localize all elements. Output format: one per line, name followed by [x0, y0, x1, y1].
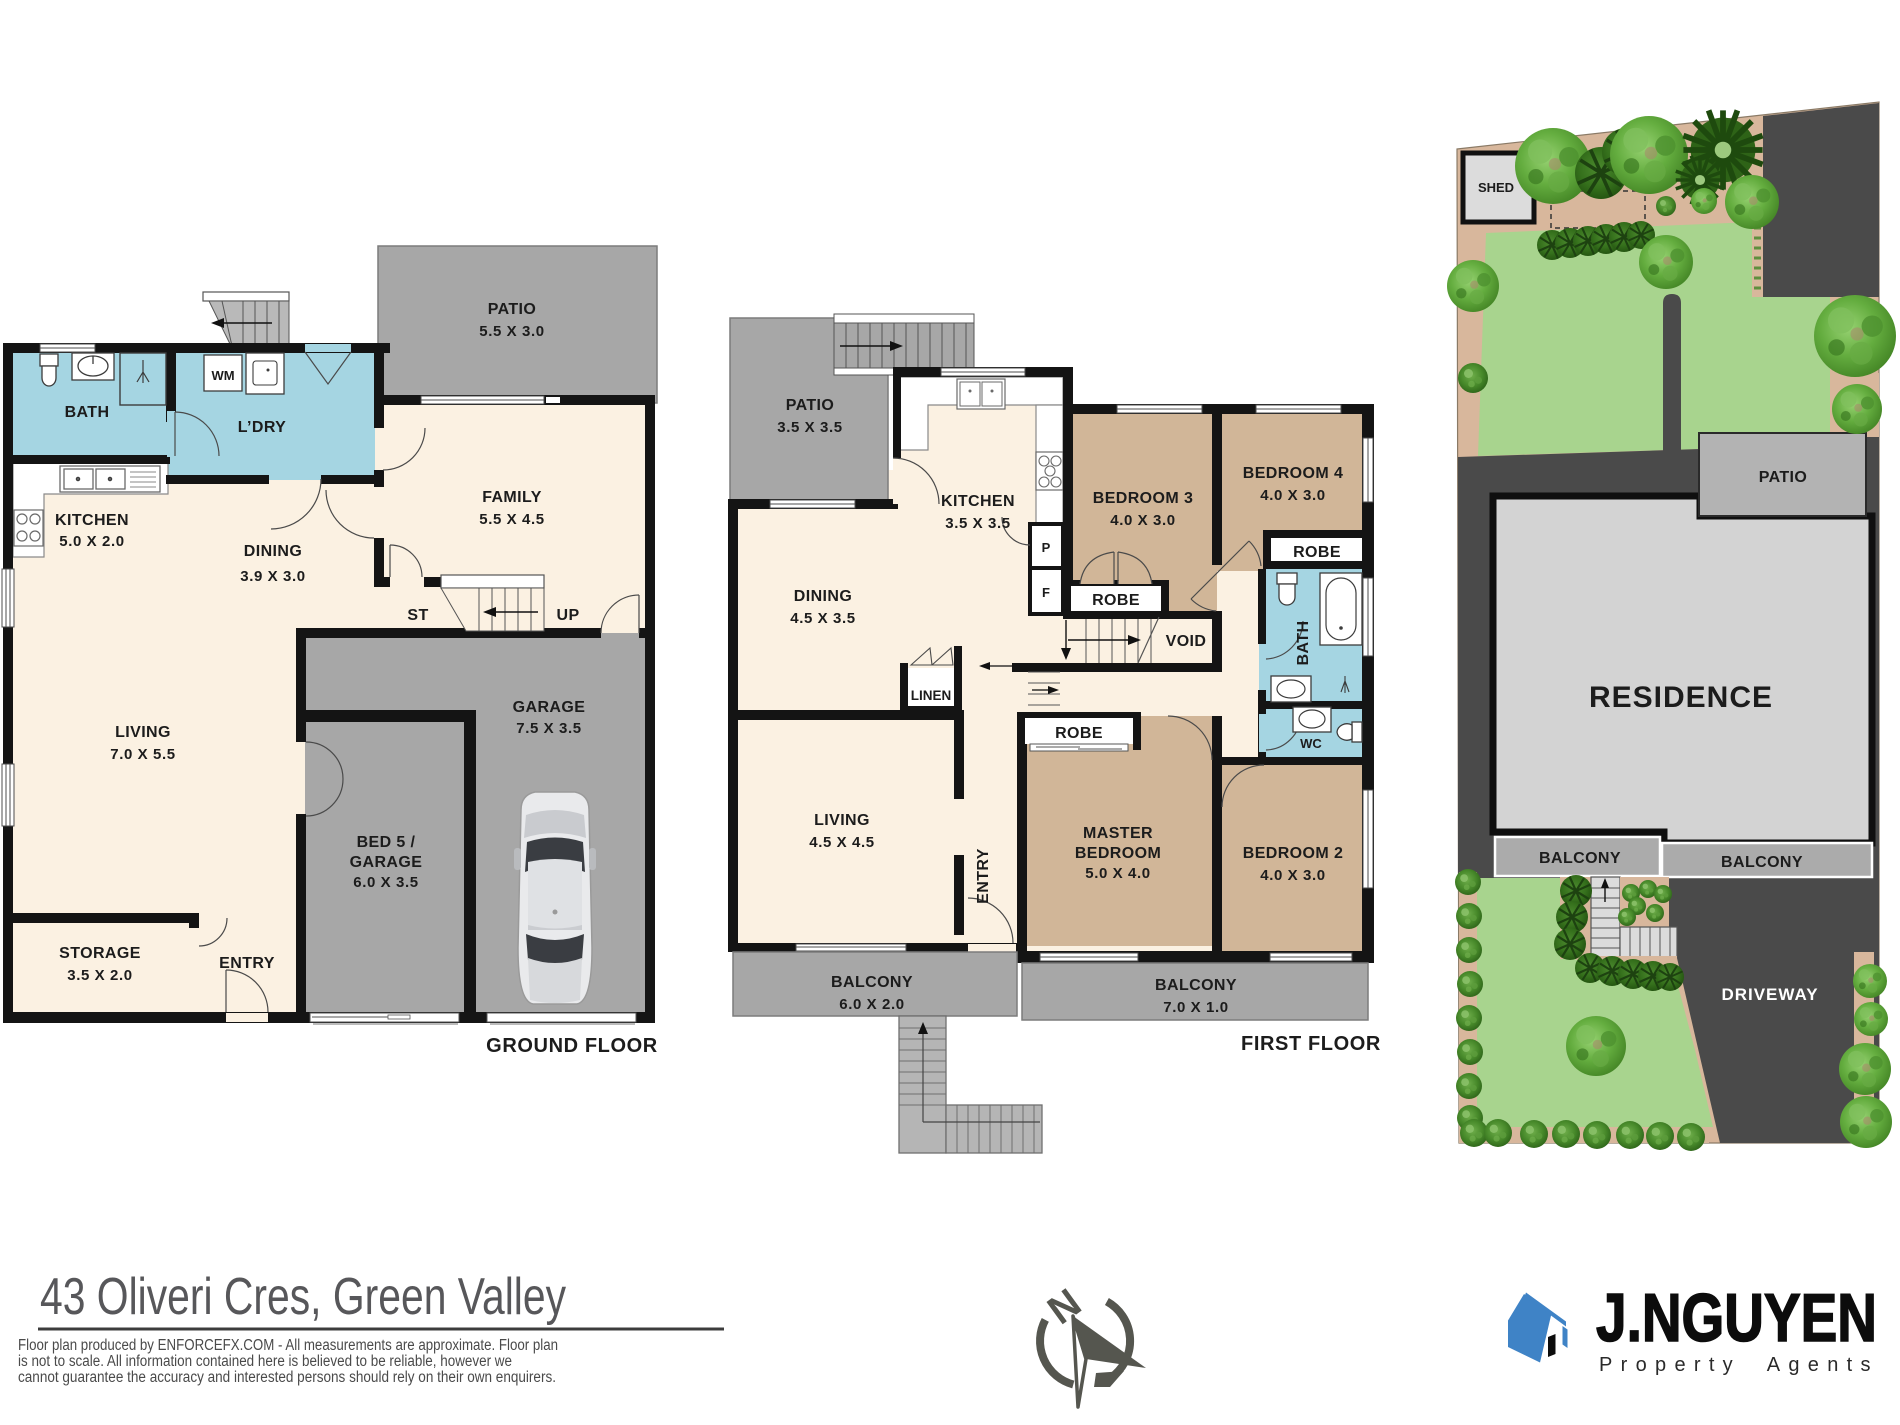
svg-text:DRIVEWAY: DRIVEWAY — [1721, 985, 1818, 1004]
svg-text:Floor plan produced by ENFORCE: Floor plan produced by ENFORCEFX.COM - A… — [18, 1337, 558, 1354]
svg-text:P: P — [1042, 540, 1051, 555]
svg-text:5.5 X 4.5: 5.5 X 4.5 — [479, 511, 544, 528]
svg-text:4.0 X 3.0: 4.0 X 3.0 — [1110, 512, 1175, 529]
svg-text:cannot guarantee the accuracy: cannot guarantee the accuracy and intere… — [18, 1369, 556, 1386]
svg-text:3.9 X 3.0: 3.9 X 3.0 — [240, 568, 305, 585]
svg-text:BALCONY: BALCONY — [1155, 977, 1237, 994]
svg-text:is not to scale. All informati: is not to scale. All information contain… — [18, 1353, 512, 1370]
svg-text:BALCONY: BALCONY — [1539, 850, 1621, 867]
svg-text:KITCHEN: KITCHEN — [941, 493, 1015, 510]
svg-text:6.0 X 3.5: 6.0 X 3.5 — [353, 874, 418, 891]
svg-text:ROBE: ROBE — [1055, 725, 1103, 742]
svg-text:GARAGE: GARAGE — [513, 699, 586, 716]
svg-text:ENTRY: ENTRY — [975, 848, 992, 904]
svg-text:RESIDENCE: RESIDENCE — [1589, 681, 1773, 714]
svg-text:7.0 X 5.5: 7.0 X 5.5 — [110, 746, 175, 763]
svg-text:LIVING: LIVING — [814, 812, 870, 829]
svg-text:BEDROOM 4: BEDROOM 4 — [1243, 465, 1344, 482]
svg-text:BATH: BATH — [65, 404, 110, 421]
svg-text:L’DRY: L’DRY — [238, 419, 287, 436]
svg-text:43 Oliveri Cres, Green Valley: 43 Oliveri Cres, Green Valley — [40, 1268, 566, 1326]
svg-text:PATIO: PATIO — [1759, 469, 1808, 486]
svg-text:BED 5 /: BED 5 / — [357, 834, 416, 851]
svg-text:MASTER: MASTER — [1083, 825, 1153, 842]
svg-text:PATIO: PATIO — [488, 301, 537, 318]
svg-text:SHED: SHED — [1478, 180, 1514, 195]
svg-text:4.0 X 3.0: 4.0 X 3.0 — [1260, 487, 1325, 504]
svg-text:LIVING: LIVING — [115, 724, 171, 741]
svg-text:ST: ST — [407, 607, 428, 624]
svg-text:7.5 X 3.5: 7.5 X 3.5 — [516, 720, 581, 737]
svg-text:LINEN: LINEN — [911, 688, 952, 703]
svg-text:4.5 X 4.5: 4.5 X 4.5 — [809, 834, 874, 851]
svg-text:ROBE: ROBE — [1293, 544, 1341, 561]
svg-text:3.5 X 3.5: 3.5 X 3.5 — [945, 515, 1010, 532]
svg-text:KITCHEN: KITCHEN — [55, 512, 129, 529]
svg-text:FAMILY: FAMILY — [482, 489, 542, 506]
svg-text:BATH: BATH — [1295, 621, 1312, 666]
svg-text:VOID: VOID — [1166, 633, 1207, 650]
svg-text:Property Agents: Property Agents — [1599, 1354, 1879, 1376]
svg-text:BALCONY: BALCONY — [831, 974, 913, 991]
svg-text:BEDROOM: BEDROOM — [1075, 845, 1161, 862]
svg-text:5.5 X 3.0: 5.5 X 3.0 — [479, 323, 544, 340]
svg-text:3.5 X 2.0: 3.5 X 2.0 — [67, 967, 132, 984]
svg-text:6.0 X 2.0: 6.0 X 2.0 — [839, 996, 904, 1013]
svg-text:5.0 X 2.0: 5.0 X 2.0 — [59, 533, 124, 550]
svg-text:FIRST FLOOR: FIRST FLOOR — [1241, 1033, 1381, 1055]
svg-text:STORAGE: STORAGE — [59, 945, 141, 962]
svg-text:J.NGUYEN: J.NGUYEN — [1596, 1280, 1877, 1356]
svg-text:WC: WC — [1300, 736, 1322, 751]
svg-text:DINING: DINING — [794, 588, 852, 605]
svg-text:7.0 X 1.0: 7.0 X 1.0 — [1163, 999, 1228, 1016]
svg-text:BALCONY: BALCONY — [1721, 854, 1803, 871]
svg-text:DINING: DINING — [244, 543, 302, 560]
svg-text:4.0 X 3.0: 4.0 X 3.0 — [1260, 867, 1325, 884]
svg-text:BEDROOM 2: BEDROOM 2 — [1243, 845, 1344, 862]
svg-text:BEDROOM 3: BEDROOM 3 — [1093, 490, 1194, 507]
svg-text:WM: WM — [211, 368, 234, 383]
svg-text:PATIO: PATIO — [786, 397, 835, 414]
svg-text:5.0 X 4.0: 5.0 X 4.0 — [1085, 865, 1150, 882]
svg-text:GARAGE: GARAGE — [350, 854, 423, 871]
svg-text:UP: UP — [556, 607, 579, 624]
svg-text:3.5 X 3.5: 3.5 X 3.5 — [777, 419, 842, 436]
svg-text:ROBE: ROBE — [1092, 592, 1140, 609]
svg-text:ENTRY: ENTRY — [219, 955, 275, 972]
svg-text:F: F — [1042, 585, 1050, 600]
svg-text:4.5 X 3.5: 4.5 X 3.5 — [790, 610, 855, 627]
svg-text:GROUND FLOOR: GROUND FLOOR — [486, 1035, 658, 1057]
